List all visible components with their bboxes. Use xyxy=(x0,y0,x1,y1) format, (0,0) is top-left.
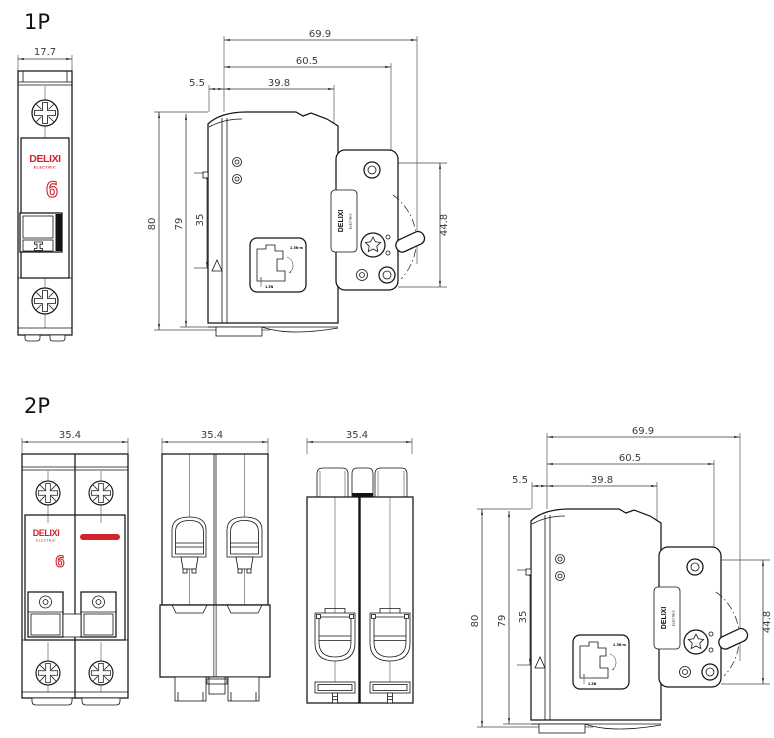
dim-rail-offset: 5.5 xyxy=(189,78,205,89)
toggle-lever xyxy=(394,230,427,254)
dim-width: 35.4 xyxy=(22,430,128,454)
toggle-switch xyxy=(20,213,62,252)
dim-height-body: 79 xyxy=(174,218,185,231)
mounting-feet xyxy=(25,335,65,341)
dim-rail-window: 35 xyxy=(518,611,529,624)
screw-top-right-icon xyxy=(89,481,113,505)
rating-digit: 6 xyxy=(46,178,59,202)
section-label-2p: 2P xyxy=(24,394,50,418)
side-brand-label: DELIXI ELECTRIC xyxy=(654,587,680,649)
side-view-1p: 69.9 60.5 39.8 5.5 80 79 35 44.8 xyxy=(147,29,450,336)
front-view-1p: 17.7 DELIXI ELECTRIC 6 xyxy=(18,47,72,341)
detail-note-top: 2.5N·m xyxy=(290,246,304,250)
terminal-feet xyxy=(175,677,259,701)
side-brand-label: DELIXI ELECTRIC xyxy=(331,190,357,252)
side-view-2p: 69.9 60.5 39.8 5.5 80 79 35 44.8 xyxy=(470,426,773,733)
rail-jaw xyxy=(526,569,531,575)
screw-bottom-right-icon xyxy=(89,661,113,685)
back-view-2p: 35.4 xyxy=(307,430,413,703)
dim-width-label: 17.7 xyxy=(34,47,56,58)
rating-digit: 6 xyxy=(55,552,65,571)
side-label-sub: ELECTRIC xyxy=(349,213,353,229)
breaker-body: DELIXI ELECTRIC xyxy=(203,112,427,336)
dim-front-height: 44.8 xyxy=(762,611,773,633)
dim-width: 35.4 xyxy=(307,430,412,454)
brand-subtitle: ELECTRIC xyxy=(36,539,56,543)
dim-depth-overall: 69.9 xyxy=(309,29,331,40)
red-indicator-bar xyxy=(80,534,120,540)
din-clip-slider xyxy=(539,724,585,733)
star-knob-icon xyxy=(684,630,708,654)
handle-tie-bar xyxy=(63,614,81,637)
brand-name: DELIXI xyxy=(33,528,60,538)
side-label-brand: DELIXI xyxy=(338,210,345,233)
side-label-sub: ELECTRIC xyxy=(672,610,676,626)
terminal-bumps xyxy=(317,468,407,497)
dim-rail-window: 35 xyxy=(195,214,206,227)
terminal-clamp-right xyxy=(370,609,410,662)
dim-rail-offset: 5.5 xyxy=(512,475,528,486)
rail-jaw xyxy=(203,172,208,178)
dim-height-overall: 80 xyxy=(147,218,158,231)
dim-depth-overall: 69.9 xyxy=(632,426,654,437)
section-label-1p: 1P xyxy=(24,10,50,34)
breaker-dimension-drawing: 1P 2P 17.7 DELIXI ELECTRIC 6 xyxy=(0,0,774,738)
dim-width: 35.4 xyxy=(162,430,268,454)
dim-height-overall: 80 xyxy=(470,615,481,628)
din-clip-slider xyxy=(216,327,262,336)
front-view-2p: 35.4 DELIXI ELECTRIC 6 xyxy=(22,430,128,705)
breaker-outline xyxy=(307,468,413,703)
dim-depth-body: 60.5 xyxy=(619,453,641,464)
screw-top-icon xyxy=(32,100,58,126)
toggle-lever xyxy=(717,627,750,651)
breaker-outline xyxy=(160,454,270,701)
dim-depth-case: 39.8 xyxy=(591,475,613,486)
top-view-2p: 35.4 xyxy=(160,430,270,701)
dim-width: 17.7 xyxy=(18,47,72,71)
brand-name: DELIXI xyxy=(29,153,61,165)
din-clip-detail-box: 2.5N·m 1.5N xyxy=(250,238,306,292)
dim-depth-case: 39.8 xyxy=(268,78,290,89)
dim-width-label: 35.4 xyxy=(346,430,368,441)
breaker-body: DELIXI ELECTRIC xyxy=(526,509,750,733)
toggle-screw-left-icon xyxy=(40,596,52,608)
dim-width-label: 35.4 xyxy=(201,430,223,441)
detail-note-top: 2.5N·m xyxy=(613,643,627,647)
detail-note-bottom: 1.5N xyxy=(588,682,597,686)
mounting-feet xyxy=(32,698,120,705)
toggle-screw-right-icon xyxy=(93,596,105,608)
din-clip-detail-box: 2.5N·m 1.5N xyxy=(573,635,629,689)
brand-subtitle: ELECTRIC xyxy=(34,166,57,170)
screw-top-left-icon xyxy=(36,481,60,505)
side-label-brand: DELIXI xyxy=(661,607,668,630)
dim-width-label: 35.4 xyxy=(59,430,81,441)
star-knob-icon xyxy=(361,233,385,257)
dim-front-height: 44.8 xyxy=(439,214,450,236)
screw-bottom-icon xyxy=(32,288,58,314)
dim-depth-body: 60.5 xyxy=(296,56,318,67)
dim-height-body: 79 xyxy=(497,615,508,628)
terminal-clamp-left xyxy=(315,609,355,662)
detail-note-bottom: 1.5N xyxy=(265,285,274,289)
screw-bottom-left-icon xyxy=(36,661,60,685)
